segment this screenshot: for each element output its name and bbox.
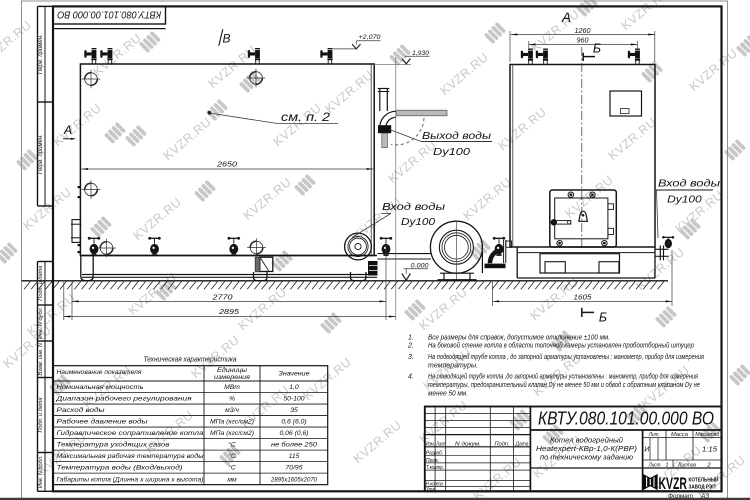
svg-text:измерения: измерения bbox=[214, 374, 250, 381]
svg-text:2650: 2650 bbox=[216, 159, 238, 168]
svg-text:1: 1 bbox=[665, 463, 668, 469]
svg-text:Диапазон рабочего регулировани: Диапазон рабочего регулирования bbox=[55, 395, 192, 403]
svg-text:В: В bbox=[222, 32, 230, 46]
svg-text:Dy100: Dy100 bbox=[667, 193, 702, 205]
svg-text:На подводящей трубе котла ,: На подводящей трубе котла , до запорной … bbox=[428, 353, 704, 361]
svg-text:На боковой стенке котла в обла: На боковой стенке котла в области топочн… bbox=[428, 342, 694, 350]
svg-text:не более 250: не более 250 bbox=[271, 441, 317, 449]
svg-text:Взам. инв. N: Взам. инв. N bbox=[38, 342, 44, 376]
svg-text:КВТУ.080.101.00.000 ВО: КВТУ.080.101.00.000 ВО bbox=[538, 407, 714, 428]
svg-text:°С: °С bbox=[228, 441, 236, 449]
svg-text:Б: Б bbox=[593, 42, 601, 56]
svg-text:температуры, предохранительный: температуры, предохранительный клапан Dу… bbox=[428, 381, 700, 389]
svg-text:А: А bbox=[561, 10, 571, 25]
svg-text:мм: мм bbox=[227, 476, 237, 483]
svg-text:35: 35 bbox=[290, 407, 298, 414]
svg-text:Изм.: Изм. bbox=[426, 442, 435, 448]
svg-text:1605: 1605 bbox=[574, 293, 593, 302]
svg-text:Масштаб: Масштаб bbox=[695, 432, 720, 438]
svg-text:Масса: Масса bbox=[671, 432, 688, 438]
svg-text:МПа (кгс/см2): МПа (кгс/см2) bbox=[210, 430, 254, 437]
svg-text:см. п. 2: см. п. 2 bbox=[281, 110, 330, 124]
svg-text:4.: 4. bbox=[408, 374, 414, 381]
svg-text:Лист: Лист bbox=[436, 442, 446, 448]
svg-text:Листов: Листов bbox=[677, 463, 696, 469]
svg-text:Подп. и дата: Подп. и дата bbox=[38, 397, 44, 432]
svg-text:2.: 2. bbox=[407, 343, 414, 350]
svg-text:Максимальная рабочая температу: Максимальная рабочая температура воды bbox=[57, 452, 204, 460]
svg-text:Гидравлическое сопративление к: Гидравлическое сопративление котла bbox=[57, 429, 204, 437]
svg-text:На отводящей трубе котла ,до з: На отводящей трубе котла ,до запорной ар… bbox=[428, 373, 698, 381]
svg-text:Инв. N подл.: Инв. N подл. bbox=[38, 456, 44, 489]
svg-text:Утв.: Утв. bbox=[425, 487, 436, 493]
svg-text:Дата: Дата bbox=[515, 442, 529, 448]
svg-text:°С: °С bbox=[228, 452, 236, 460]
svg-text:Разраб.: Разраб. bbox=[426, 450, 443, 456]
svg-text:И: И bbox=[644, 445, 650, 454]
svg-text:м3/ч: м3/ч bbox=[225, 407, 239, 414]
svg-text:2895: 2895 bbox=[218, 307, 240, 316]
svg-text:КОТЕЛЬНЫЙ: КОТЕЛЬНЫЙ bbox=[689, 476, 719, 484]
svg-text:50-100: 50-100 bbox=[283, 396, 304, 403]
svg-text:70/95: 70/95 bbox=[285, 465, 302, 472]
svg-text:Dy100: Dy100 bbox=[433, 146, 470, 158]
svg-text:МВт: МВт bbox=[224, 384, 240, 391]
svg-text:Техническая характеристика: Техническая характеристика bbox=[144, 354, 237, 363]
svg-text:Наименование показателя: Наименование показателя bbox=[57, 369, 142, 376]
svg-text:Номинальная мощность: Номинальная мощность bbox=[57, 384, 144, 391]
svg-text:по техническому заданию: по техническому заданию bbox=[540, 453, 634, 462]
svg-text:Вход воды: Вход воды bbox=[658, 178, 720, 190]
svg-text:Температура уходящих газов: Температура уходящих газов bbox=[57, 441, 171, 449]
svg-text:Все размеры для справок, допус: Все размеры для справок, допустимое откл… bbox=[428, 333, 610, 341]
svg-text:МПа (кгс/см2): МПа (кгс/см2) bbox=[210, 419, 254, 426]
svg-text:Инв. N дубл.: Инв. N дубл. bbox=[38, 307, 44, 339]
svg-text:Рабочее давление воды: Рабочее давление воды bbox=[57, 418, 148, 426]
svg-text:Пров.: Пров. bbox=[426, 458, 439, 464]
svg-text:Значение: Значение bbox=[279, 370, 310, 377]
svg-text:менее 50 мм.: менее 50 мм. bbox=[428, 390, 468, 397]
svg-text:ЗАВОД РЭП: ЗАВОД РЭП bbox=[689, 484, 716, 490]
svg-text:1,930: 1,930 bbox=[412, 50, 429, 57]
svg-text:Перв. примен.: Перв. примен. bbox=[38, 34, 44, 74]
svg-text:%: % bbox=[229, 396, 235, 403]
svg-text:1260: 1260 bbox=[575, 26, 591, 35]
svg-text:Перв. примен.: Перв. примен. bbox=[38, 134, 44, 174]
svg-text:0,6 (6,0): 0,6 (6,0) bbox=[281, 419, 306, 426]
svg-text:Выход воды: Выход воды bbox=[422, 130, 491, 142]
svg-text:Б: Б bbox=[599, 311, 607, 325]
svg-text:0,06 (0,6): 0,06 (0,6) bbox=[279, 430, 308, 437]
svg-text:Т.контр.: Т.контр. bbox=[426, 465, 444, 471]
svg-text:Dy100: Dy100 bbox=[401, 216, 435, 228]
svg-text:А: А bbox=[63, 123, 72, 137]
svg-text:1:15: 1:15 bbox=[702, 445, 718, 454]
svg-text:Формат: Формат bbox=[668, 493, 693, 500]
svg-text:+2,070: +2,070 bbox=[359, 34, 381, 41]
svg-text:Температура воды (Вход/выход): Температура воды (Вход/выход) bbox=[57, 464, 183, 472]
svg-text:Вход воды: Вход воды bbox=[382, 201, 445, 213]
svg-text:2895х1605х2070: 2895х1605х2070 bbox=[270, 476, 317, 483]
svg-text:Габариты котла (Длинна х ширин: Габариты котла (Длинна х ширина х высота… bbox=[57, 475, 204, 483]
svg-text:температуры.: температуры. bbox=[428, 362, 478, 369]
svg-text:N докум.: N докум. bbox=[455, 442, 481, 448]
svg-text:А3: А3 bbox=[700, 493, 710, 500]
svg-text:1,0: 1,0 bbox=[289, 384, 299, 391]
svg-text:Лист: Лист bbox=[648, 463, 661, 469]
svg-text:Лит.: Лит. bbox=[648, 432, 660, 438]
svg-text:Единицы: Единицы bbox=[217, 366, 247, 374]
svg-text:960: 960 bbox=[577, 36, 589, 45]
svg-text:1.: 1. bbox=[408, 334, 414, 341]
svg-text:Расход воды: Расход воды bbox=[57, 406, 105, 414]
svg-text:KVZR: KVZR bbox=[659, 475, 688, 493]
svg-text:КВТУ.080.101.00.000 ВО: КВТУ.080.101.00.000 ВО bbox=[57, 8, 161, 19]
svg-text:2770: 2770 bbox=[211, 293, 233, 302]
svg-text:0.000: 0.000 bbox=[411, 263, 429, 270]
svg-text:3.: 3. bbox=[408, 354, 414, 361]
svg-text:Подп.: Подп. bbox=[495, 442, 510, 448]
svg-text:115: 115 bbox=[289, 453, 300, 460]
svg-text:°С: °С bbox=[228, 464, 236, 472]
